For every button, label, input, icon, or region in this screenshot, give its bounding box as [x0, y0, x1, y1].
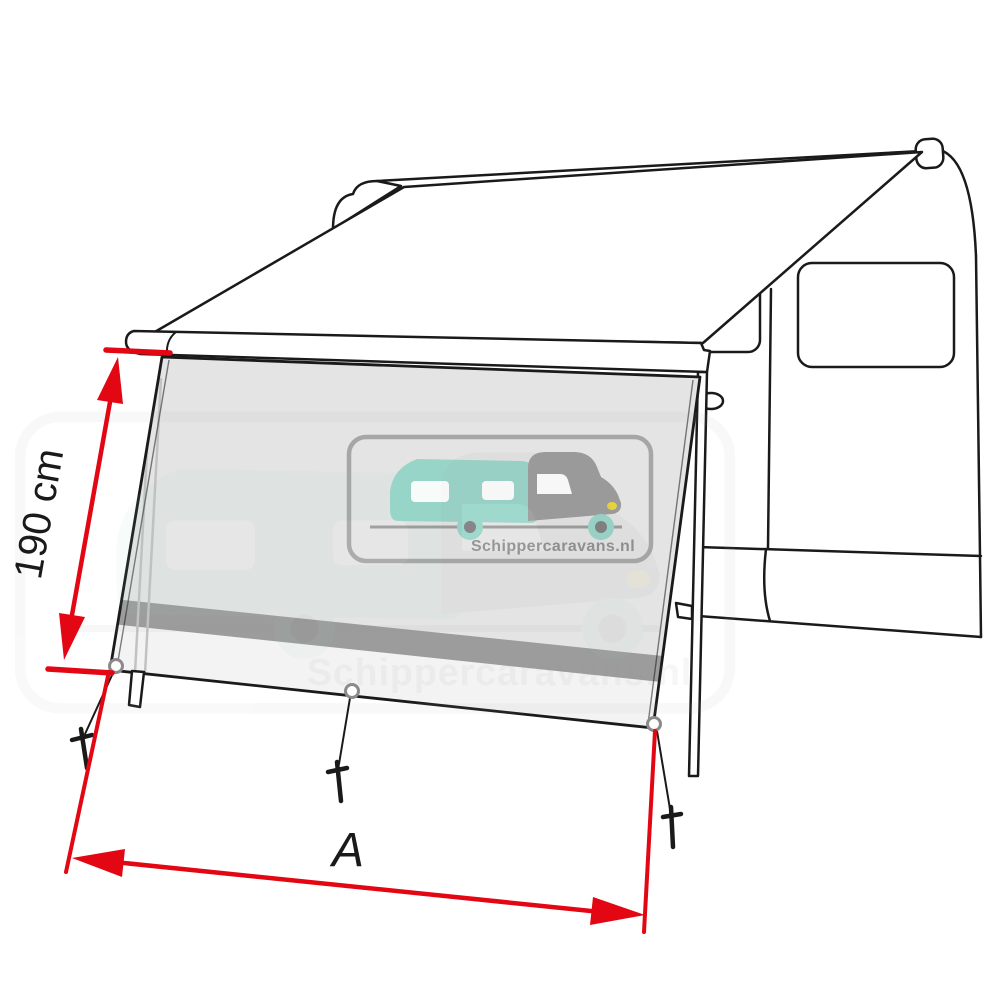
grommet — [346, 685, 359, 698]
dimension-tick — [106, 350, 170, 353]
grommet — [648, 718, 661, 731]
arrowhead-left — [72, 849, 125, 877]
awning-diagram: Schippercaravans.nl — [0, 0, 1000, 1000]
dimension-line — [72, 402, 110, 615]
arrowhead-right — [590, 897, 645, 925]
support-leg-clamp — [676, 603, 692, 619]
dimension-tick — [48, 669, 112, 673]
arrowhead-up — [97, 357, 123, 404]
ground-peg — [663, 807, 681, 847]
ground-peg — [328, 762, 347, 801]
guy-line — [657, 731, 670, 809]
extension-line — [644, 731, 655, 932]
diagram-canvas: Schippercaravans.nl — [0, 0, 1000, 1000]
width-dimension-label: A — [329, 824, 364, 877]
caravan-window-front — [798, 263, 954, 367]
arrowhead-down — [59, 613, 85, 660]
support-leg-left-foot — [129, 671, 144, 707]
